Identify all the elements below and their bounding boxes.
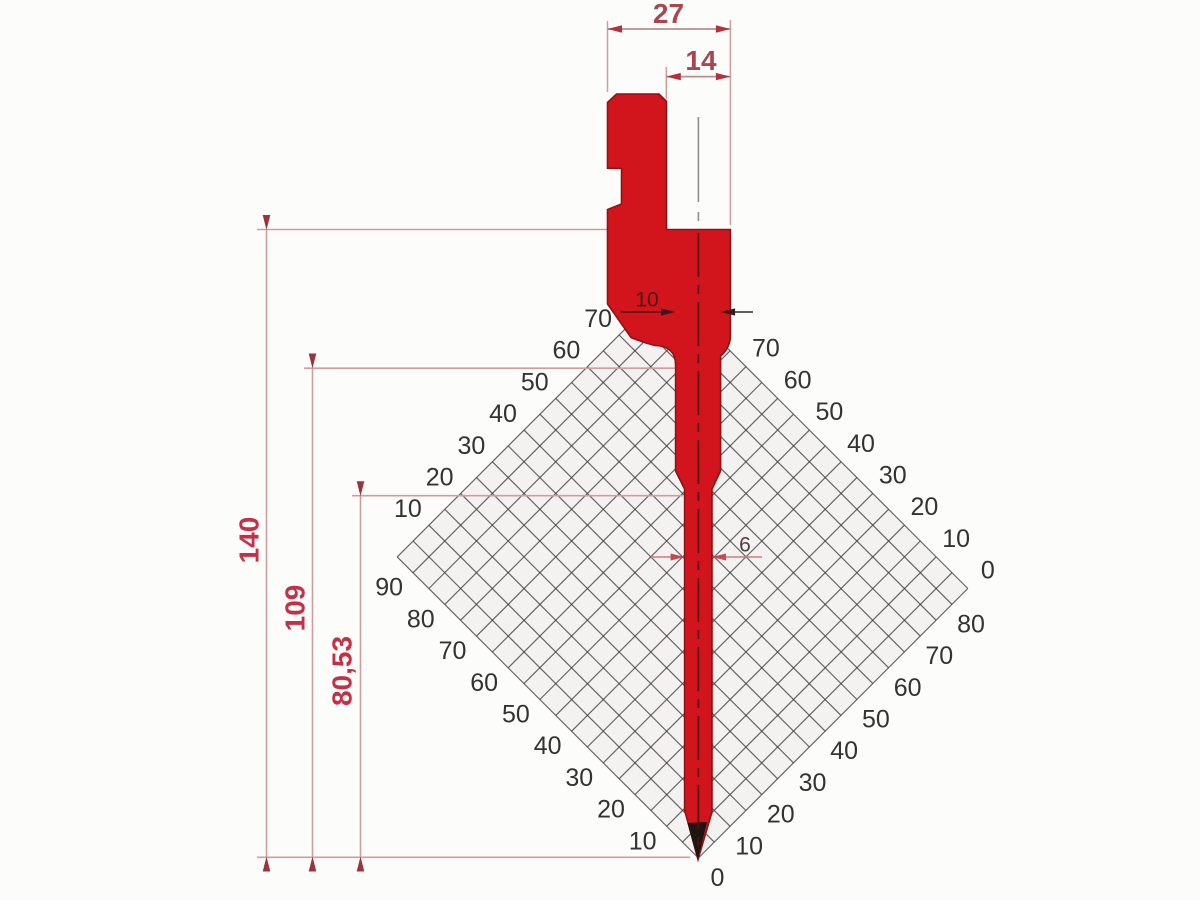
svg-text:40: 40 xyxy=(489,400,517,428)
svg-text:60: 60 xyxy=(552,337,580,365)
svg-text:10: 10 xyxy=(942,525,970,553)
svg-text:70: 70 xyxy=(925,642,953,670)
svg-text:80: 80 xyxy=(407,605,435,633)
svg-text:14: 14 xyxy=(685,45,717,76)
svg-text:6: 6 xyxy=(739,534,751,557)
svg-text:60: 60 xyxy=(894,674,922,702)
svg-text:50: 50 xyxy=(815,398,843,426)
svg-text:20: 20 xyxy=(767,801,795,829)
svg-text:30: 30 xyxy=(565,764,593,792)
svg-text:80: 80 xyxy=(957,610,985,638)
svg-text:0: 0 xyxy=(981,557,995,585)
svg-text:70: 70 xyxy=(752,335,780,363)
svg-text:60: 60 xyxy=(470,669,498,697)
svg-text:30: 30 xyxy=(879,461,907,489)
svg-text:50: 50 xyxy=(521,368,549,396)
svg-text:10: 10 xyxy=(635,289,658,312)
svg-text:20: 20 xyxy=(597,796,625,824)
svg-text:80,53: 80,53 xyxy=(327,636,358,706)
svg-text:50: 50 xyxy=(502,701,530,729)
svg-text:0: 0 xyxy=(710,864,724,892)
svg-text:27: 27 xyxy=(653,0,684,29)
svg-text:10: 10 xyxy=(735,832,763,860)
svg-text:90: 90 xyxy=(375,574,403,602)
svg-text:70: 70 xyxy=(439,637,467,665)
svg-text:70: 70 xyxy=(584,305,612,333)
svg-text:30: 30 xyxy=(457,432,485,460)
svg-text:140: 140 xyxy=(234,517,265,564)
svg-text:60: 60 xyxy=(784,366,812,394)
svg-text:40: 40 xyxy=(830,737,858,765)
svg-text:40: 40 xyxy=(534,732,562,760)
svg-text:20: 20 xyxy=(910,493,938,521)
svg-text:10: 10 xyxy=(394,495,422,523)
svg-text:30: 30 xyxy=(799,769,827,797)
svg-text:50: 50 xyxy=(862,706,890,734)
svg-text:109: 109 xyxy=(280,585,311,632)
svg-text:20: 20 xyxy=(426,463,454,491)
svg-text:10: 10 xyxy=(629,827,657,855)
svg-text:40: 40 xyxy=(847,430,875,458)
